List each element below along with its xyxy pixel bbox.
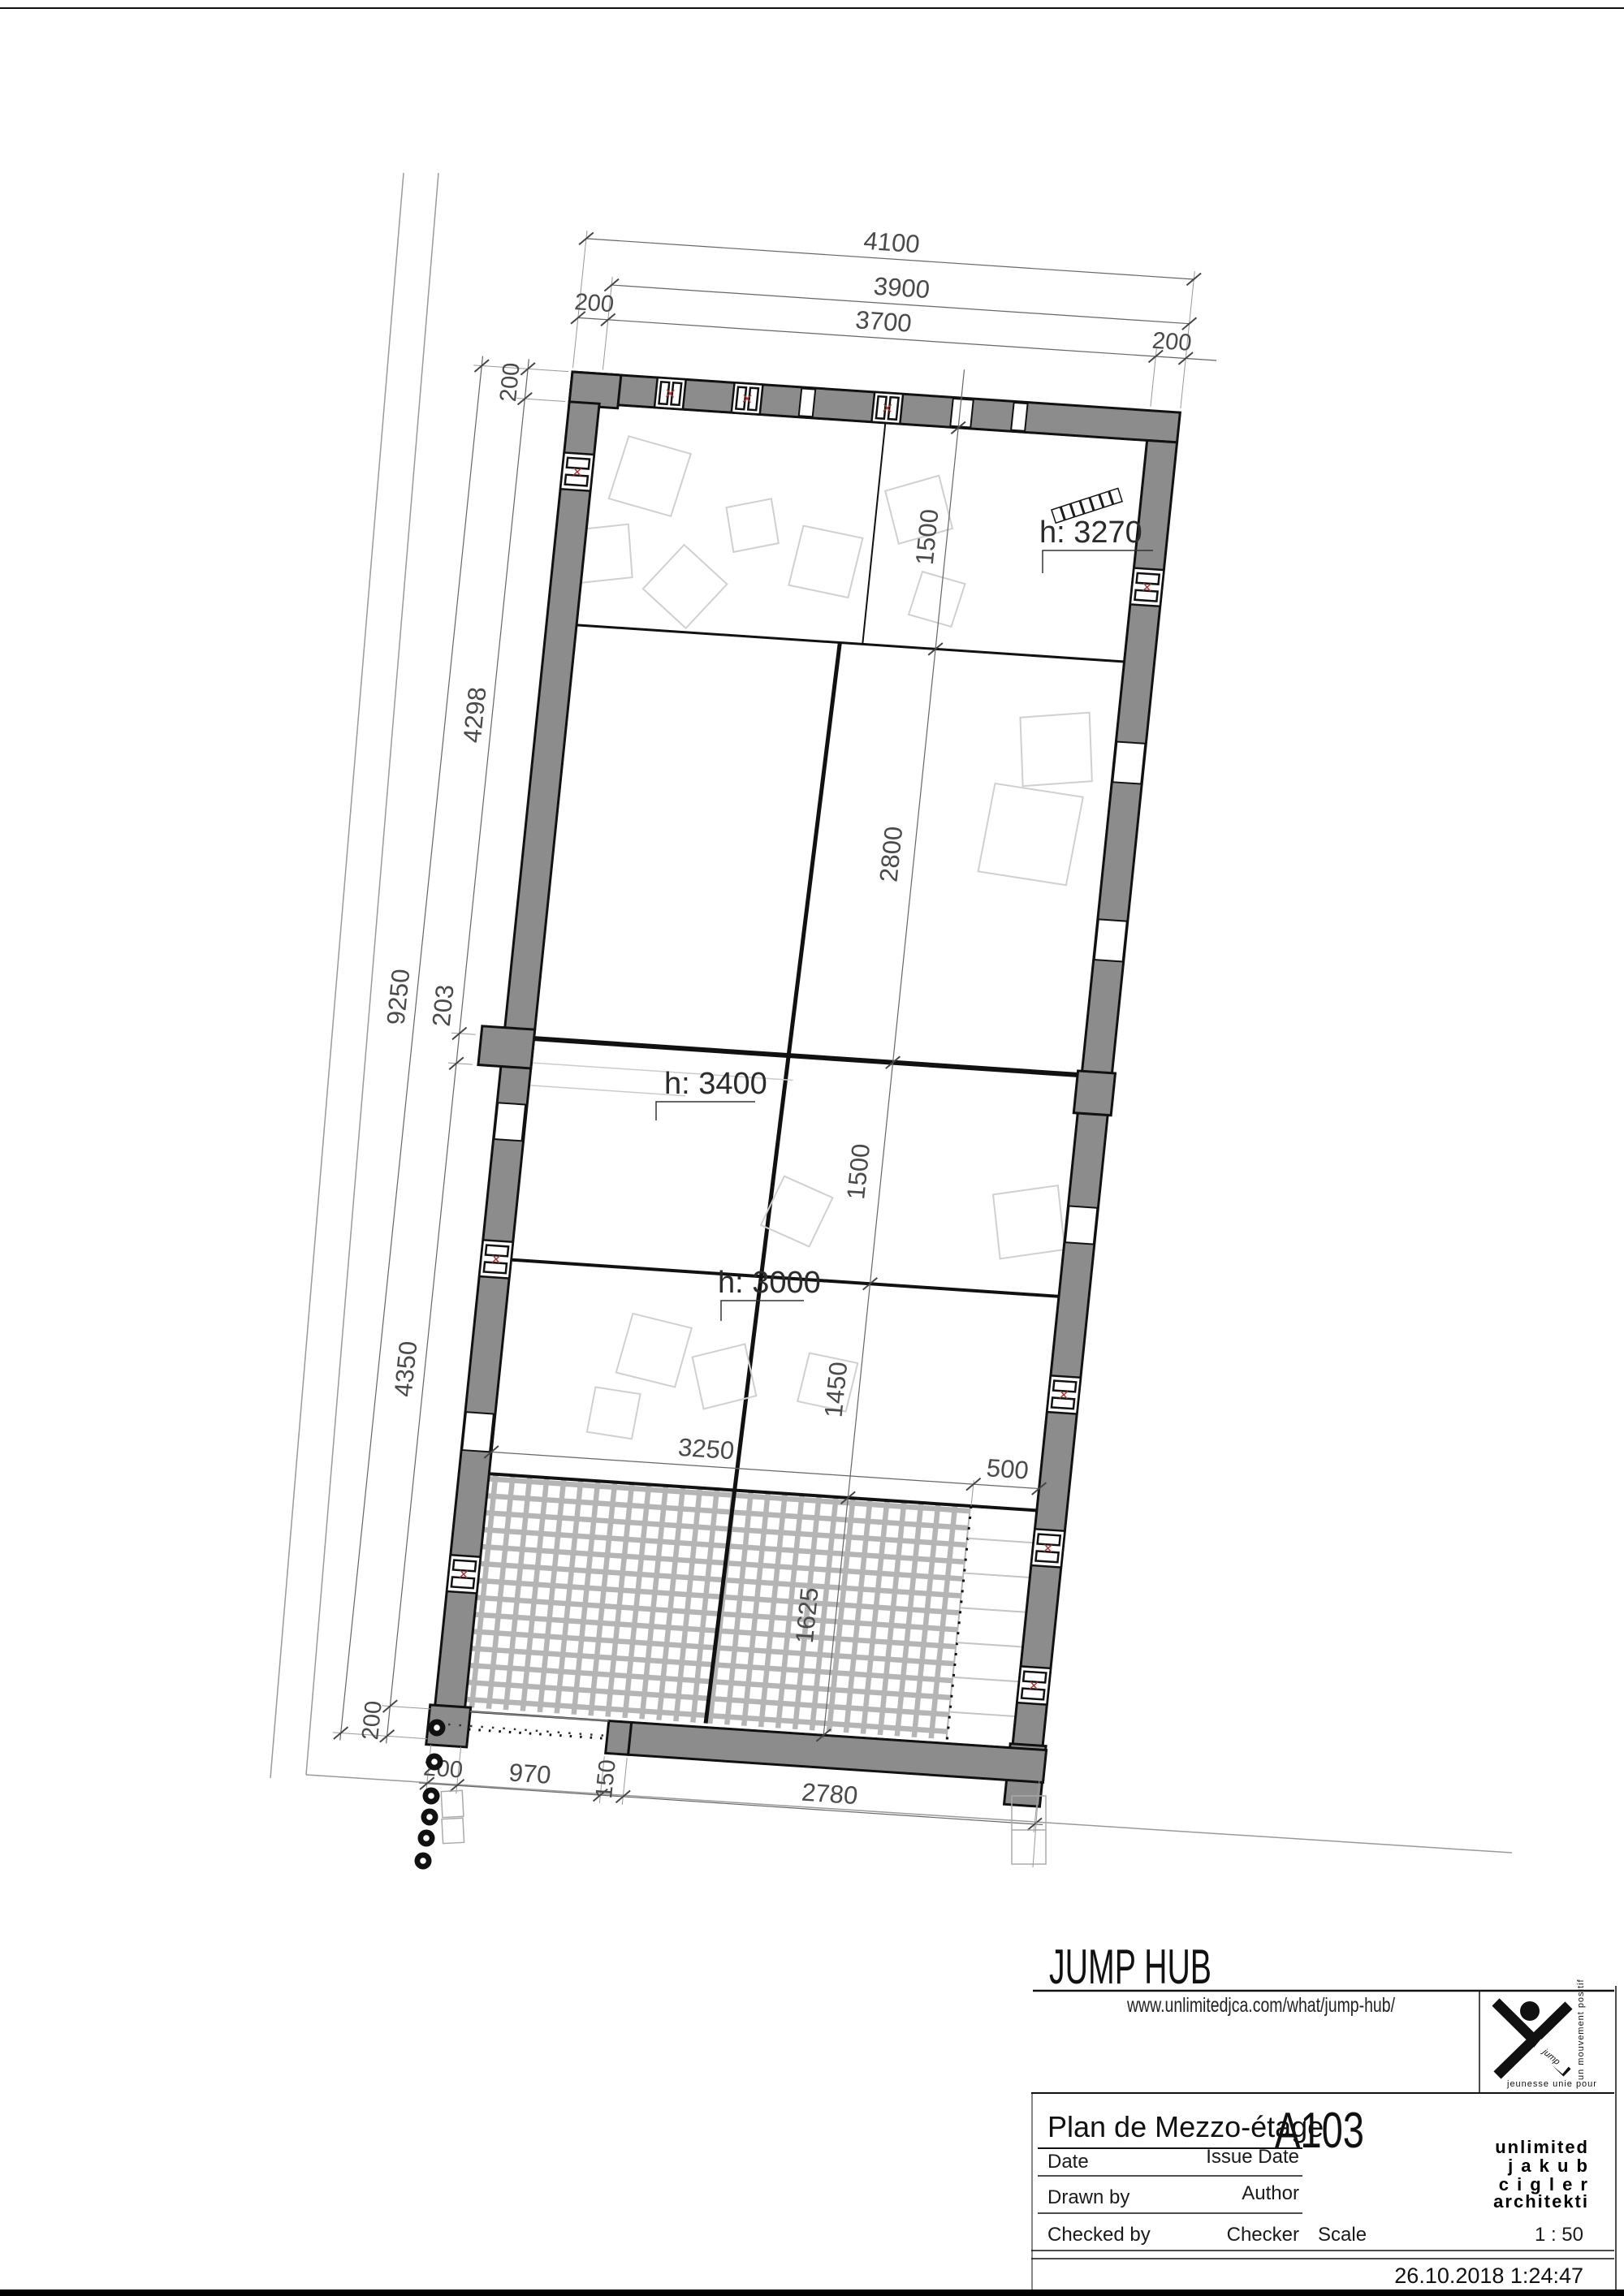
logo-figure-head — [1520, 2001, 1540, 2021]
height-label-c: h: 3000 — [718, 1266, 821, 1300]
dim-band3: 1500 — [841, 1143, 875, 1201]
dim-wall-top-left: 200 — [573, 289, 615, 317]
dim-left-step: 203 — [427, 984, 460, 1028]
dim-bottom-opening: 970 — [508, 1759, 552, 1789]
dim-band2: 2800 — [874, 826, 908, 883]
dim-top-mid: 3900 — [872, 272, 931, 304]
drawn-by-value: Author — [1242, 2182, 1299, 2204]
sheet-bottom-border — [0, 2290, 1624, 2296]
dim-left-upper: 4298 — [458, 686, 492, 744]
firm-line-1: unlimited — [1495, 2137, 1589, 2157]
dim-top-overall: 4100 — [862, 227, 921, 258]
dim-hatch-rest: 500 — [985, 1453, 1030, 1484]
logo-side-text: un mouvement positif — [1576, 1979, 1586, 2080]
building-plan: 4100 3900 3700 200 200 200 4298 203 9250… — [303, 200, 1228, 1834]
dim-band4: 1450 — [818, 1361, 853, 1418]
date-value: Issue Date — [1206, 2146, 1299, 2168]
project-url: www.unlimitedjca.com/what/jump-hub/ — [1126, 1994, 1395, 2017]
checked-by-label: Checked by — [1047, 2224, 1151, 2246]
dim-bottom-pier: 150 — [591, 1759, 621, 1799]
drawn-by-label: Drawn by — [1047, 2186, 1129, 2208]
dim-left-overall: 9250 — [382, 968, 416, 1025]
firm-line-4: architekti — [1493, 2191, 1589, 2212]
dim-hatch-depth: 1625 — [790, 1586, 824, 1644]
threshold-dotted-line — [448, 1724, 607, 1736]
dim-band1: 1500 — [910, 508, 944, 566]
height-label-a: h: 3270 — [1039, 516, 1142, 550]
dim-wall-left-bottom: 200 — [357, 1700, 387, 1741]
date-label: Date — [1047, 2151, 1089, 2173]
dim-wall-left-top: 200 — [495, 362, 525, 403]
title-area: JUMP HUB www.unlimitedjca.com/what/jump-… — [1031, 1940, 1616, 2290]
dim-left-lower: 4350 — [389, 1340, 423, 1398]
jump-logo: jump jeunesse unie pour un mouvement pos… — [1479, 1979, 1597, 2093]
dim-top-inner: 3700 — [854, 305, 913, 337]
net-hatch-area — [465, 1474, 971, 1739]
dim-hatch-width: 3250 — [677, 1433, 736, 1465]
floor-plan-canvas: 4100 3900 3700 200 200 200 4298 203 9250… — [0, 0, 1624, 2296]
drawing-sheet: 4100 3900 3700 200 200 200 4298 203 9250… — [0, 0, 1624, 2296]
firm-line-2: j a k u b — [1507, 2156, 1589, 2176]
dim-bottom-wall: 2780 — [801, 1778, 859, 1810]
scale-label: Scale — [1318, 2224, 1367, 2246]
height-label-b: h: 3400 — [664, 1067, 767, 1101]
project-title: JUMP HUB — [1049, 1940, 1212, 1994]
scale-value: 1 : 50 — [1535, 2224, 1583, 2246]
checked-by-value: Checker — [1227, 2224, 1299, 2246]
print-timestamp: 26.10.2018 1:24:47 — [1394, 2264, 1583, 2288]
dim-wall-top-right: 200 — [1151, 328, 1193, 356]
